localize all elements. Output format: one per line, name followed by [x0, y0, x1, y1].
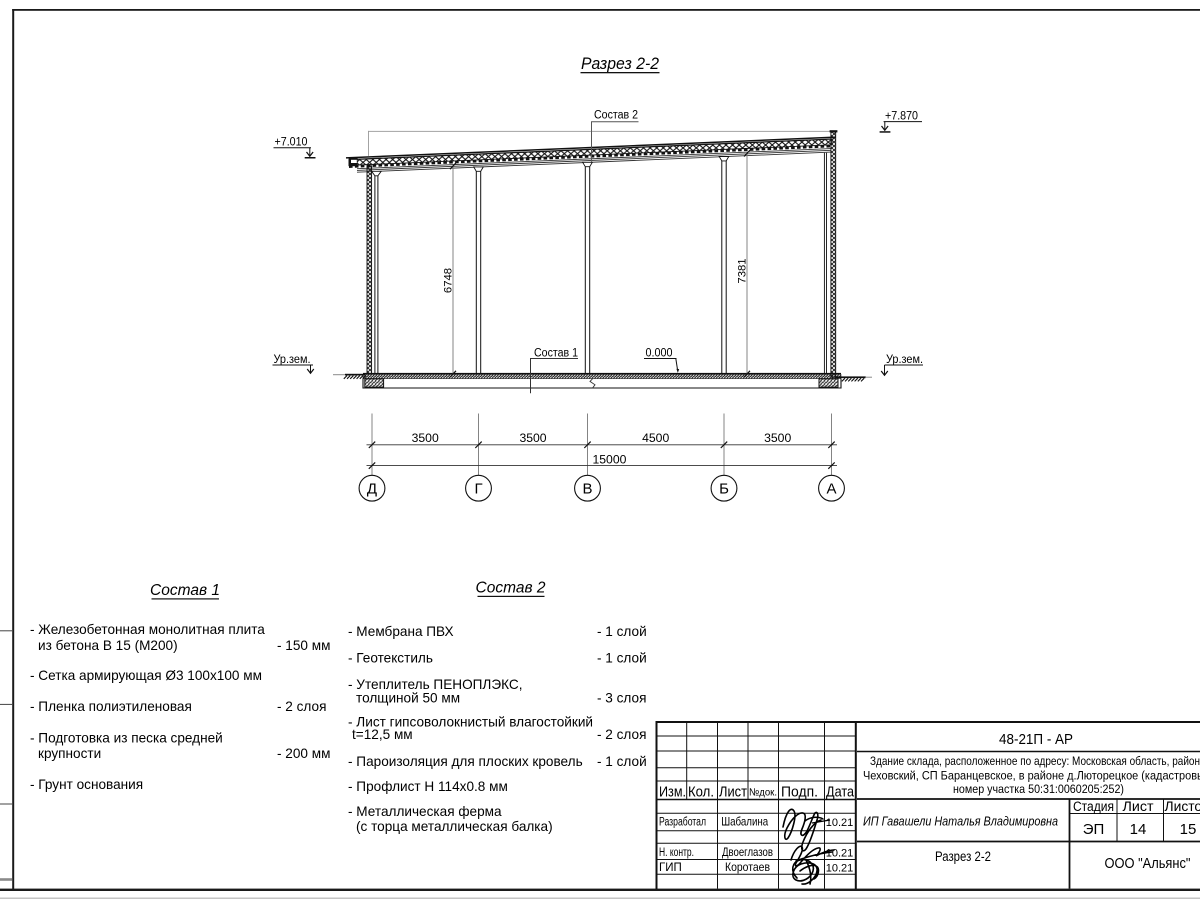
svg-text:В: В: [582, 481, 592, 498]
svg-text:48-21П - АР: 48-21П - АР: [999, 731, 1073, 748]
svg-text:0.000: 0.000: [646, 347, 673, 359]
svg-text:Дата: Дата: [826, 783, 855, 800]
svg-text:Лист: Лист: [719, 783, 747, 800]
svg-text:Ур.зем.: Ур.зем.: [274, 354, 311, 366]
svg-text:Изм.: Изм.: [659, 783, 686, 800]
svg-text:из бетона В 15 (М200): из бетона В 15 (М200): [38, 638, 178, 653]
svg-text:Чеховский, СП Баранцевское, в: Чеховский, СП Баранцевское, в районе д.Л…: [863, 769, 1200, 783]
svg-text:Кол.: Кол.: [688, 783, 714, 800]
svg-text:6748: 6748: [442, 268, 454, 293]
svg-text:- Подготовка из песка средней: - Подготовка из песка средней: [30, 731, 223, 746]
svg-text:- Металлическая ферма: - Металлическая ферма: [348, 804, 502, 819]
svg-text:Коротаев: Коротаев: [725, 860, 770, 874]
svg-text:ЭП: ЭП: [1083, 821, 1105, 838]
svg-text:крупности: крупности: [38, 746, 101, 761]
svg-text:Листов: Листов: [1165, 799, 1200, 814]
svg-text:- 3 слоя: - 3 слоя: [597, 691, 646, 706]
svg-text:ООО "Альянс": ООО "Альянс": [1105, 855, 1191, 872]
svg-text:Н. контр.: Н. контр.: [659, 847, 694, 859]
svg-text:- 150 мм: - 150 мм: [277, 638, 330, 653]
svg-text:Двоеглазов: Двоеглазов: [722, 845, 773, 859]
svg-text:(с торца металлическая балка): (с торца металлическая балка): [356, 819, 553, 834]
svg-text:Состав 2: Состав 2: [476, 580, 546, 597]
svg-text:№док.: №док.: [749, 787, 777, 799]
svg-text:3500: 3500: [412, 431, 439, 445]
svg-text:7381: 7381: [736, 258, 748, 283]
svg-text:- Сетка армирующая Ø3 100х100: - Сетка армирующая Ø3 100х100 мм: [30, 668, 262, 683]
svg-text:- 2 слоя: - 2 слоя: [277, 699, 326, 714]
svg-text:Состав 2: Состав 2: [594, 109, 638, 121]
svg-text:Разрез 2-2: Разрез 2-2: [581, 55, 659, 73]
svg-text:- Мембрана ПВХ: - Мембрана ПВХ: [348, 624, 454, 639]
svg-text:- 1 слой: - 1 слой: [597, 651, 647, 666]
svg-text:номер участка 50:31:0060205:25: номер участка 50:31:0060205:252): [953, 782, 1124, 796]
svg-text:15: 15: [1180, 821, 1197, 838]
svg-text:- Пароизоляция для плоских кро: - Пароизоляция для плоских кровель: [348, 754, 583, 769]
svg-text:10.21: 10.21: [826, 863, 854, 875]
svg-text:Состав 1: Состав 1: [150, 582, 220, 599]
svg-text:3500: 3500: [519, 431, 546, 445]
svg-text:- Профлист Н 114х0.8 мм: - Профлист Н 114х0.8 мм: [348, 779, 508, 794]
svg-text:- Грунт основания: - Грунт основания: [30, 777, 143, 792]
svg-text:Состав 1: Состав 1: [534, 347, 578, 359]
svg-text:14: 14: [1130, 821, 1147, 838]
svg-text:- 2 слоя: - 2 слоя: [597, 727, 646, 742]
svg-text:10.21: 10.21: [826, 817, 854, 829]
svg-text:+7.010: +7.010: [275, 136, 308, 148]
svg-text:Б: Б: [719, 481, 729, 498]
svg-text:Д: Д: [367, 481, 377, 498]
svg-text:Ур.зем.: Ур.зем.: [886, 354, 923, 366]
svg-text:ИП Гавашели Наталья Владимиров: ИП Гавашели Наталья Владимировна: [863, 814, 1058, 829]
svg-text:Г: Г: [474, 481, 482, 498]
svg-text:10.21: 10.21: [826, 848, 854, 860]
svg-text:ГИП: ГИП: [659, 862, 682, 874]
svg-text:толщиной 50 мм: толщиной 50 мм: [356, 691, 460, 706]
svg-text:15000: 15000: [593, 452, 627, 466]
svg-text:Здание склада, расположенное п: Здание склада, расположенное по адресу: …: [870, 754, 1200, 768]
svg-text:+7.870: +7.870: [885, 111, 918, 123]
svg-text:Шабалина: Шабалина: [721, 814, 768, 828]
svg-text:А: А: [826, 481, 836, 498]
svg-text:Разработал: Разработал: [659, 816, 706, 828]
svg-text:- 1 слой: - 1 слой: [597, 624, 647, 639]
svg-text:3500: 3500: [764, 431, 791, 445]
svg-text:- 200 мм: - 200 мм: [277, 746, 330, 761]
svg-text:Разрез 2-2: Разрез 2-2: [935, 849, 991, 864]
svg-text:Лист: Лист: [1123, 799, 1154, 814]
svg-text:- Железобетонная монолитная п: - Железобетонная монолитная плита: [30, 622, 265, 637]
svg-text:t=12,5 мм: t=12,5 мм: [352, 727, 413, 742]
svg-text:Стадия: Стадия: [1073, 799, 1114, 814]
svg-text:- Пленка полиэтиленовая: - Пленка полиэтиленовая: [30, 699, 192, 714]
svg-text:4500: 4500: [642, 431, 669, 445]
svg-text:- 1 слой: - 1 слой: [597, 754, 647, 769]
svg-text:Подп.: Подп.: [781, 783, 818, 800]
svg-text:- Геотекстиль: - Геотекстиль: [348, 651, 433, 666]
